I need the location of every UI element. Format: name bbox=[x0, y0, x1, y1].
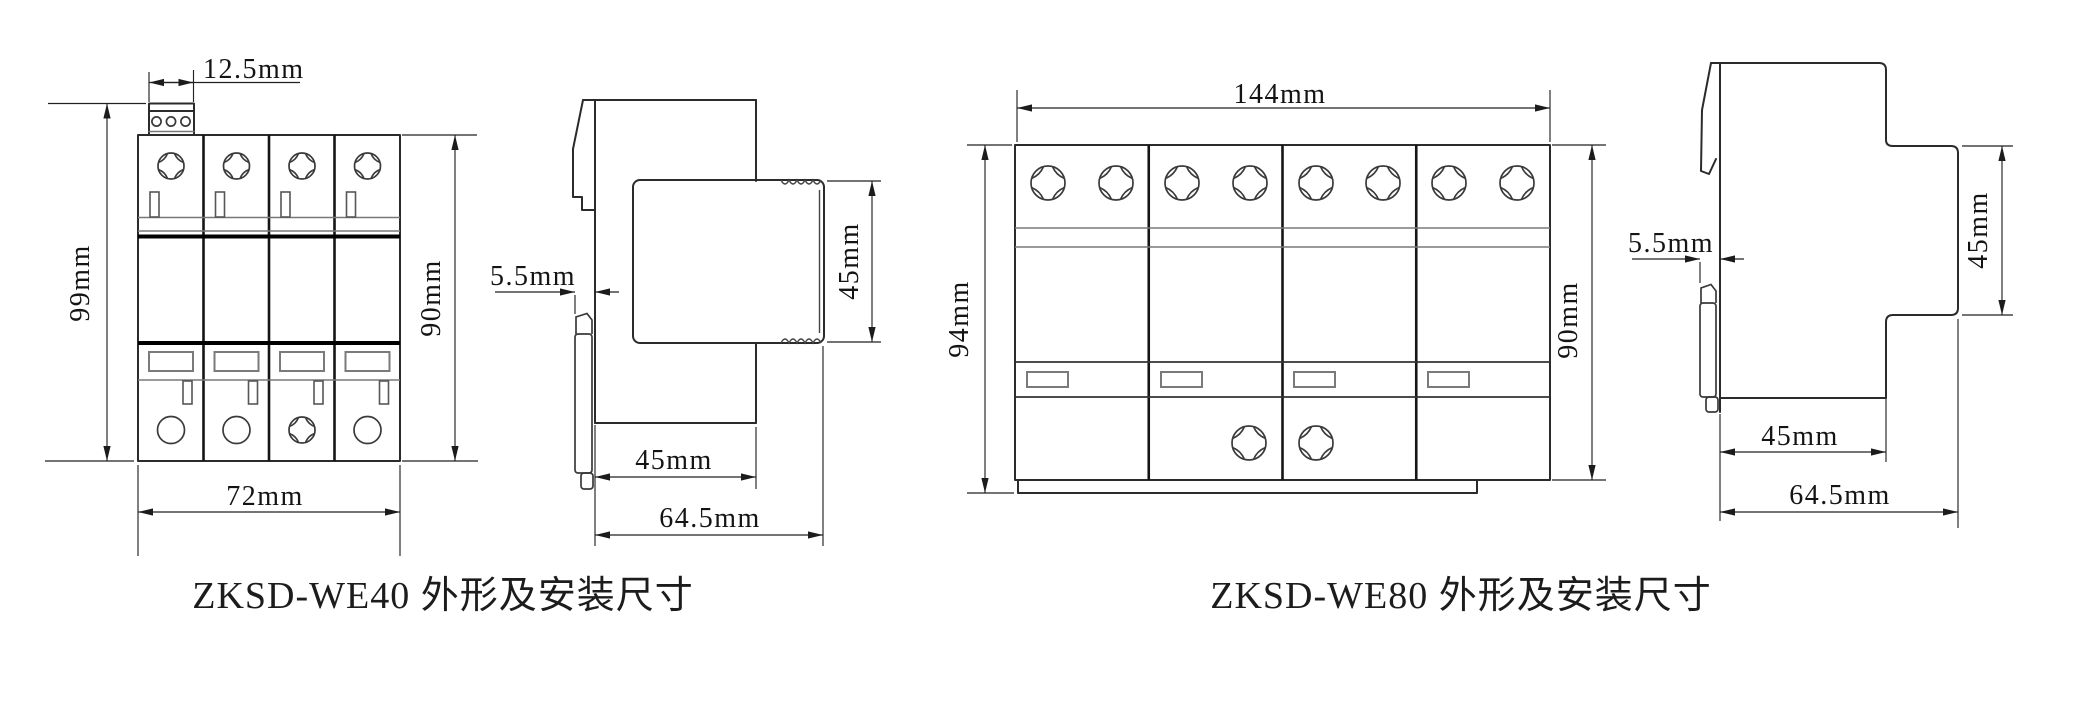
dim-we40-front-height: 45mm bbox=[827, 181, 881, 342]
terminal-hole-icon bbox=[152, 117, 161, 126]
we40-side-view: 5.5mm 45mm 45mm 64.5mm bbox=[490, 100, 881, 546]
technical-drawing: 12.5mm 99mm 90mm 72mm bbox=[0, 0, 2074, 707]
we40-side-profile bbox=[573, 100, 824, 423]
we80-base-plate bbox=[1018, 480, 1477, 493]
dim-label: 45mm bbox=[1761, 421, 1839, 452]
dim-label: 5.5mm bbox=[490, 261, 576, 292]
dim-label: 64.5mm bbox=[659, 503, 761, 534]
din-rail-clip bbox=[575, 314, 593, 490]
we80-side-profile bbox=[1701, 63, 1958, 412]
terminal-block bbox=[149, 104, 194, 136]
dim-label: 12.5mm bbox=[203, 54, 305, 85]
screw-icon bbox=[1299, 426, 1333, 460]
front-module-outline bbox=[633, 180, 824, 343]
terminal-hole-icon bbox=[158, 417, 185, 444]
terminal-hole-icon bbox=[354, 417, 381, 444]
dim-label: 99mm bbox=[65, 244, 96, 322]
screw-icon bbox=[289, 417, 315, 443]
dim-we80-width: 144mm bbox=[1017, 79, 1550, 142]
we80-caption: ZKSD-WE80 外形及安装尺寸 bbox=[1210, 575, 1711, 617]
dim-label: 45mm bbox=[834, 222, 865, 300]
dim-we40-width: 72mm bbox=[138, 465, 400, 556]
dim-label: 45mm bbox=[635, 445, 713, 476]
we80-side-view: 5.5mm 45mm 45mm 64.5mm bbox=[1628, 63, 2013, 528]
dim-we40-terminal-width: 12.5mm bbox=[149, 54, 305, 102]
dim-label: 5.5mm bbox=[1628, 228, 1714, 259]
dim-we80-front-height: 45mm bbox=[1962, 146, 2013, 315]
din-rail-clip bbox=[1700, 285, 1718, 413]
terminal-hole-icon bbox=[223, 417, 250, 444]
dim-we80-rail-offset: 5.5mm bbox=[1628, 228, 1744, 283]
screw-icon bbox=[1165, 166, 1199, 200]
dim-we80-overall-height: 94mm bbox=[944, 145, 1014, 493]
we40-front-view: 12.5mm 99mm 90mm 72mm bbox=[45, 54, 478, 556]
terminal-hole-icon bbox=[181, 117, 190, 126]
screw-icon bbox=[224, 153, 250, 179]
dim-we40-overall-height: 99mm bbox=[45, 104, 146, 462]
dim-label: 90mm bbox=[416, 259, 447, 337]
we80-indicator-windows bbox=[1027, 372, 1469, 387]
screw-icon bbox=[1233, 166, 1267, 200]
we40-bottom-slots bbox=[183, 381, 389, 404]
dim-label: 90mm bbox=[1553, 281, 1584, 359]
dim-label: 45mm bbox=[1963, 191, 1994, 269]
we40-caption: ZKSD-WE40 外形及安装尺寸 bbox=[192, 575, 693, 617]
we40-top-slots bbox=[150, 192, 356, 217]
screw-icon bbox=[1232, 426, 1266, 460]
screw-icon bbox=[1099, 166, 1133, 200]
screw-icon bbox=[355, 153, 381, 179]
dim-we80-body-height: 90mm bbox=[1552, 145, 1606, 480]
we80-front-view: 144mm 94mm 90mm bbox=[944, 79, 1606, 493]
screw-icon bbox=[1432, 166, 1466, 200]
screw-icon bbox=[1366, 166, 1400, 200]
dim-label: 94mm bbox=[944, 280, 975, 358]
dim-label: 144mm bbox=[1233, 79, 1326, 110]
dim-label: 64.5mm bbox=[1789, 480, 1891, 511]
screw-icon bbox=[1031, 166, 1065, 200]
mount-ear bbox=[1701, 63, 1716, 174]
mount-ear bbox=[573, 100, 595, 210]
screw-icon bbox=[1500, 166, 1534, 200]
dim-we40-body-height: 90mm bbox=[402, 135, 478, 461]
dim-we80-overall-depth: 64.5mm bbox=[1720, 319, 1958, 528]
screw-icon bbox=[158, 153, 184, 179]
screw-icon bbox=[289, 153, 315, 179]
terminal-hole-icon bbox=[166, 117, 175, 126]
dim-label: 72mm bbox=[226, 481, 304, 512]
screw-icon bbox=[1299, 166, 1333, 200]
we40-module-dividers bbox=[204, 135, 335, 461]
drawing-sheet: 12.5mm 99mm 90mm 72mm bbox=[0, 0, 2074, 707]
dim-we40-rail-offset: 5.5mm bbox=[490, 261, 619, 314]
